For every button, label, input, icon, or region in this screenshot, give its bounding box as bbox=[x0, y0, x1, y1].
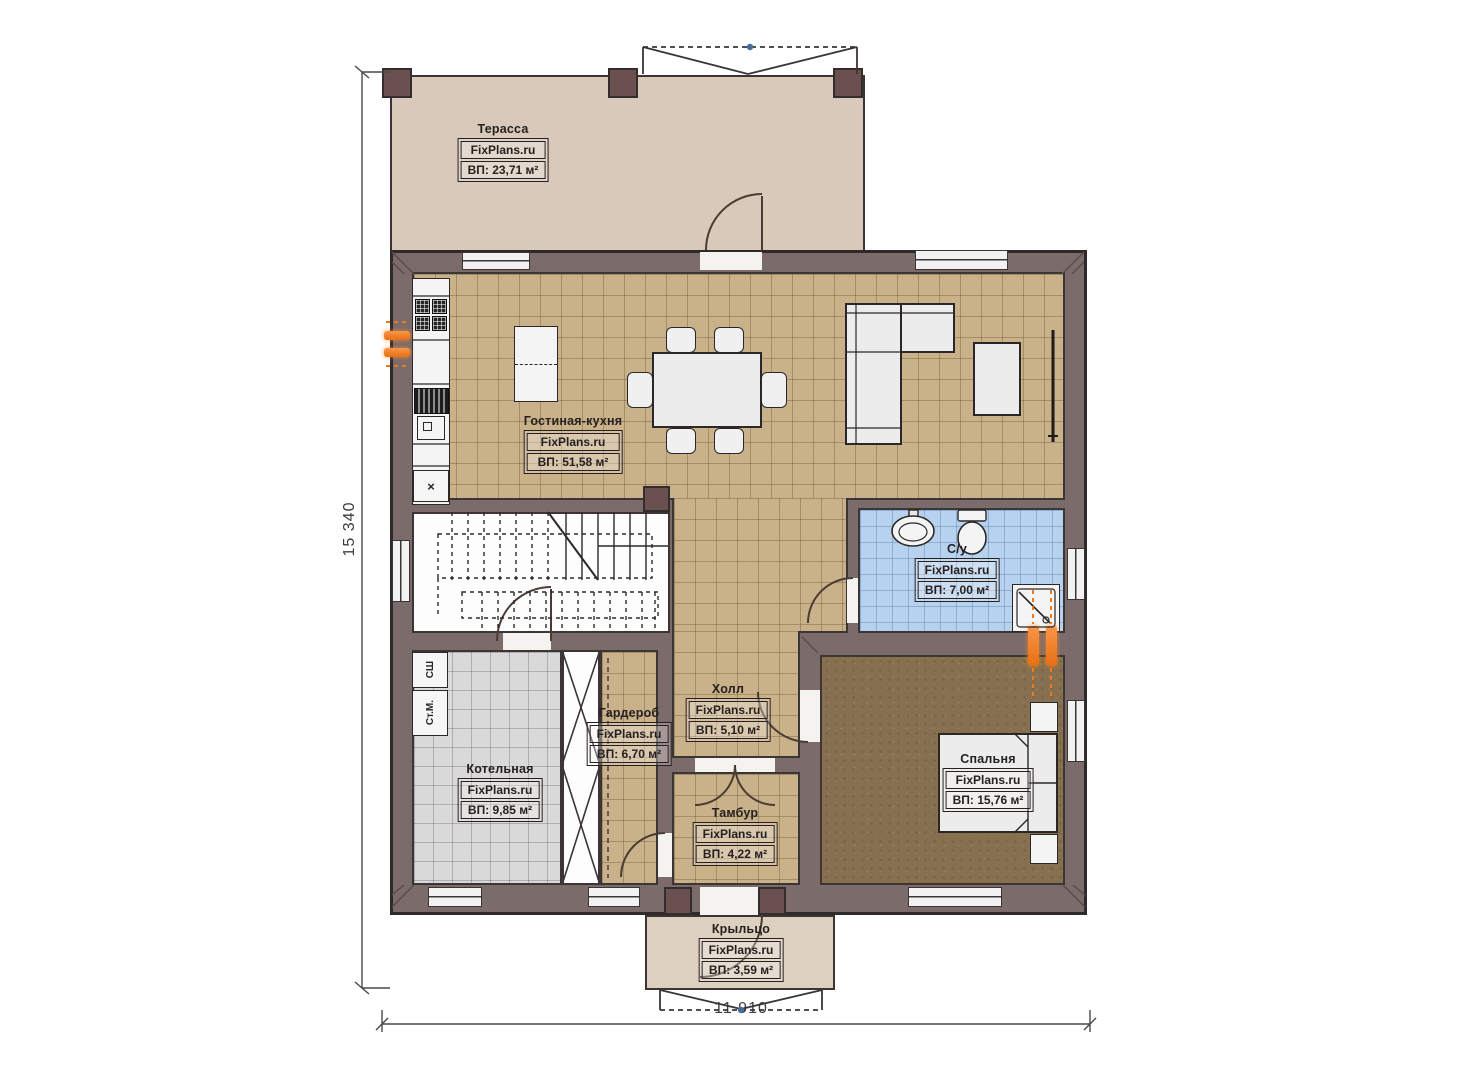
wardrobe-floor bbox=[600, 650, 658, 885]
dimension-horizontal: 11 910 bbox=[696, 1000, 786, 1018]
room-name: Крыльцо bbox=[699, 922, 784, 936]
brand-label: FixPlans.ru bbox=[689, 701, 768, 719]
shower-tray bbox=[1012, 584, 1060, 632]
dining-table bbox=[652, 352, 762, 428]
room-name: Котельная bbox=[458, 762, 543, 776]
shaft bbox=[562, 650, 600, 885]
porch-column bbox=[758, 887, 786, 915]
dining-chair bbox=[627, 372, 653, 408]
window-right-bathroom bbox=[1067, 548, 1085, 600]
brand-label: FixPlans.ru bbox=[461, 781, 540, 799]
nightstand bbox=[1030, 702, 1058, 732]
room-name: Гостиная-кухня bbox=[524, 414, 623, 428]
brand-label: FixPlans.ru bbox=[461, 141, 546, 159]
wardrobe-door-opening bbox=[658, 833, 672, 877]
window-top-living bbox=[915, 250, 1008, 270]
cross-symbol: × bbox=[427, 479, 435, 494]
terrace-door-opening bbox=[700, 252, 762, 270]
room-name: Холл bbox=[686, 682, 771, 696]
window-top-kitchen bbox=[462, 252, 530, 270]
room-label-living: Гостиная-кухня FixPlans.ru ВП: 51,58 м² bbox=[524, 414, 623, 474]
kitchen-island bbox=[514, 326, 558, 402]
hall-tambour-door-opening bbox=[695, 758, 775, 772]
room-label-tambour: Тамбур FixPlans.ru ВП: 4,22 м² bbox=[693, 806, 778, 866]
kitchen-sink bbox=[414, 388, 449, 414]
room-area: ВП: 6,70 м² bbox=[590, 745, 669, 763]
stair-zone bbox=[412, 512, 670, 633]
terrace-steps-icon bbox=[643, 44, 857, 74]
room-name: Терасса bbox=[458, 122, 549, 136]
interior-column bbox=[643, 486, 670, 512]
radiator bbox=[384, 331, 410, 340]
room-area: ВП: 4,22 м² bbox=[696, 845, 775, 863]
dining-chair bbox=[714, 428, 744, 454]
room-label-terrace: Терасса FixPlans.ru ВП: 23,71 м² bbox=[458, 122, 549, 182]
stove-burner bbox=[415, 299, 430, 314]
room-name: Спальня bbox=[943, 752, 1034, 766]
dryer-unit: СШ bbox=[412, 652, 448, 688]
bedroom-door-opening bbox=[800, 690, 820, 742]
room-label-bedroom: Спальня FixPlans.ru ВП: 15,76 м² bbox=[943, 752, 1034, 812]
kitchen-sink-bowl bbox=[417, 416, 445, 440]
room-label-hall: Холл FixPlans.ru ВП: 5,10 м² bbox=[686, 682, 771, 742]
stove-burner bbox=[432, 299, 447, 314]
room-area: ВП: 15,76 м² bbox=[946, 791, 1031, 809]
room-area: ВП: 9,85 м² bbox=[461, 801, 540, 819]
bathroom-door-opening bbox=[847, 578, 858, 623]
stove-burner bbox=[415, 316, 430, 331]
window-bottom-bedroom bbox=[908, 887, 1002, 907]
brand-label: FixPlans.ru bbox=[696, 825, 775, 843]
room-label-bathroom: С/у FixPlans.ru ВП: 7,00 м² bbox=[915, 542, 1000, 602]
terrace-column bbox=[833, 68, 863, 98]
washer-unit: Ст.М. bbox=[412, 690, 448, 736]
window-right-bedroom bbox=[1067, 700, 1085, 762]
room-area: ВП: 5,10 м² bbox=[689, 721, 768, 739]
floor-plan: × СШ Ст.М. bbox=[0, 0, 1473, 1080]
room-area: ВП: 3,59 м² bbox=[702, 961, 781, 979]
terrace-column bbox=[608, 68, 638, 98]
stove-burner bbox=[432, 316, 447, 331]
dining-chair bbox=[761, 372, 787, 408]
dining-chair bbox=[714, 327, 744, 353]
room-label-wardrobe: Гардероб FixPlans.ru ВП: 6,70 м² bbox=[587, 706, 672, 766]
terrace-column bbox=[382, 68, 412, 98]
dryer-label: СШ bbox=[425, 661, 436, 678]
room-name: Гардероб bbox=[587, 706, 672, 720]
dimension-vertical: 15 340 bbox=[341, 494, 359, 564]
room-label-boiler: Котельная FixPlans.ru ВП: 9,85 м² bbox=[458, 762, 543, 822]
room-area: ВП: 23,71 м² bbox=[461, 161, 546, 179]
brand-label: FixPlans.ru bbox=[946, 771, 1031, 789]
washer-label: Ст.М. bbox=[425, 700, 436, 725]
dining-chair bbox=[666, 327, 696, 353]
room-name: С/у bbox=[915, 542, 1000, 556]
kitchen-unit-cross: × bbox=[413, 470, 449, 502]
island-divider bbox=[515, 364, 557, 365]
boiler-door-opening bbox=[503, 633, 551, 650]
radiator bbox=[1046, 626, 1057, 666]
room-label-porch: Крыльцо FixPlans.ru ВП: 3,59 м² bbox=[699, 922, 784, 982]
nightstand bbox=[1030, 834, 1058, 864]
entry-door-opening bbox=[700, 887, 758, 915]
room-area: ВП: 51,58 м² bbox=[527, 453, 620, 471]
coffee-table bbox=[973, 342, 1021, 416]
brand-label: FixPlans.ru bbox=[590, 725, 669, 743]
porch-column bbox=[664, 887, 692, 915]
brand-label: FixPlans.ru bbox=[527, 433, 620, 451]
window-bottom-wardrobe bbox=[588, 887, 640, 907]
room-area: ВП: 7,00 м² bbox=[918, 581, 997, 599]
corridor-floor bbox=[672, 498, 848, 633]
radiator bbox=[1028, 626, 1039, 666]
window-bottom-boiler bbox=[428, 887, 482, 907]
brand-label: FixPlans.ru bbox=[918, 561, 997, 579]
dining-chair bbox=[666, 428, 696, 454]
room-name: Тамбур bbox=[693, 806, 778, 820]
window-left-stairs bbox=[392, 540, 410, 602]
brand-label: FixPlans.ru bbox=[702, 941, 781, 959]
radiator bbox=[384, 348, 410, 357]
sofa-left-section bbox=[845, 303, 902, 445]
sink-drain bbox=[423, 422, 432, 431]
